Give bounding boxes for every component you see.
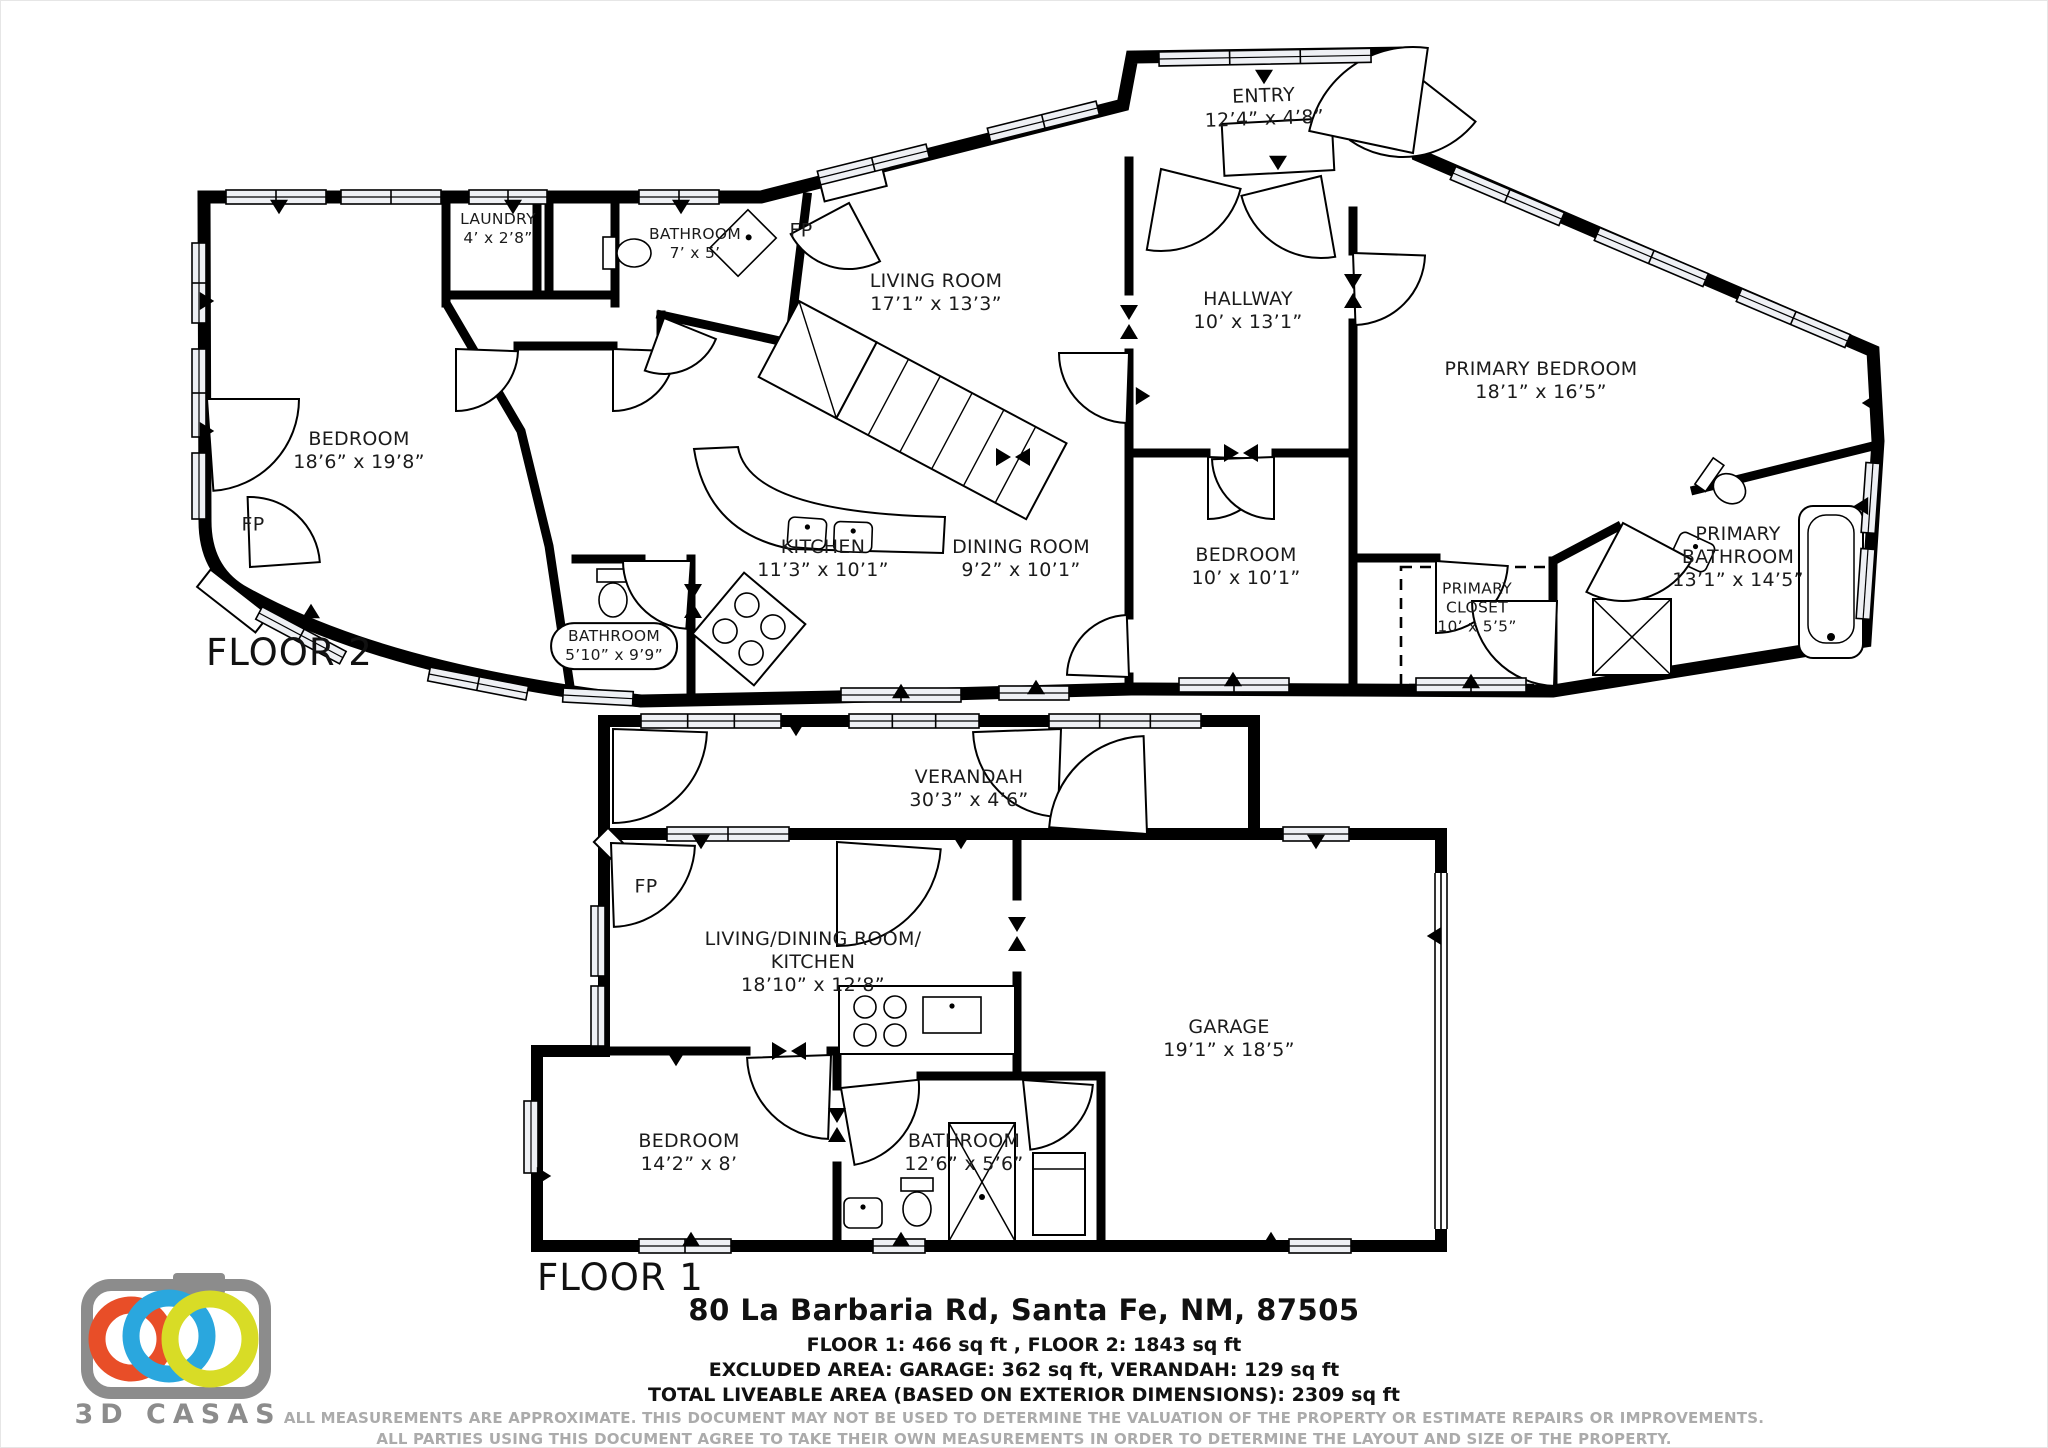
room-label-kitchen: KITCHEN 11’3” x 10’1” xyxy=(757,536,889,582)
room-label-primary-closet: PRIMARY CLOSET 10’ x 5’5” xyxy=(1437,580,1516,637)
floor-plan-drawing xyxy=(1,1,2048,1448)
property-address: 80 La Barbaria Rd, Santa Fe, NM, 87505 xyxy=(1,1293,2047,1327)
excluded-areas: EXCLUDED AREA: GARAGE: 362 sq ft, VERAND… xyxy=(1,1359,2047,1381)
floor2-title: FLOOR 2 xyxy=(206,631,373,674)
room-label-entry: ENTRY 12’4” x 4’8” xyxy=(1204,83,1325,133)
room-label-garage: GARAGE 19’1” x 18’5” xyxy=(1163,1016,1295,1062)
room-label-verandah: VERANDAH 30’3” x 4’6” xyxy=(909,766,1028,812)
fireplace-label-f2-living: FP xyxy=(790,219,813,242)
room-label-bedroom-left: BEDROOM 18’6” x 19’8” xyxy=(293,428,425,474)
room-label-primary-bathroom: PRIMARY BATHROOM 13’1” x 14’5” xyxy=(1672,523,1804,593)
room-label-dining-room: DINING ROOM 9’2” x 10’1” xyxy=(952,536,1090,582)
disclaimer-line-2: ALL PARTIES USING THIS DOCUMENT AGREE TO… xyxy=(1,1430,2047,1448)
room-label-bathroom-510: BATHROOM 5’10” x 9’9” xyxy=(550,622,678,670)
room-label-bathroom-7x5: BATHROOM 7’ x 5’ xyxy=(649,225,741,263)
total-liveable-area: TOTAL LIVEABLE AREA (BASED ON EXTERIOR D… xyxy=(1,1384,2047,1406)
3d-casas-logo xyxy=(75,1259,295,1409)
logo-brand-text: 3D CASAS xyxy=(63,1399,293,1430)
disclaimer-line-1: ALL MEASUREMENTS ARE APPROXIMATE. THIS D… xyxy=(1,1409,2047,1427)
room-label-bedroom-f1: BEDROOM 14’2” x 8’ xyxy=(638,1130,739,1176)
fireplace-label-f1: FP xyxy=(635,875,658,898)
room-label-laundry: LAUNDRY 4’ x 2’8” xyxy=(460,210,536,248)
room-label-primary-bedroom: PRIMARY BEDROOM 18’1” x 16’5” xyxy=(1445,358,1638,404)
room-label-living-dining-kitchen: LIVING/DINING ROOM/ KITCHEN 18’10” x 12’… xyxy=(705,928,922,998)
floor-plan-document: LAUNDRY 4’ x 2’8” BATHROOM 7’ x 5’ LIVIN… xyxy=(0,0,2048,1448)
floor-areas: FLOOR 1: 466 sq ft , FLOOR 2: 1843 sq ft xyxy=(1,1334,2047,1356)
room-label-bedroom-mid: BEDROOM 10’ x 10’1” xyxy=(1192,544,1301,590)
room-label-living-room: LIVING ROOM 17’1” x 13’3” xyxy=(870,270,1003,316)
fireplace-label-f2-bedroom: FP xyxy=(242,513,265,536)
room-label-hallway: HALLWAY 10’ x 13’1” xyxy=(1194,288,1303,334)
room-label-bathroom-f1: BATHROOM 12’6” x 5’6” xyxy=(904,1130,1023,1176)
